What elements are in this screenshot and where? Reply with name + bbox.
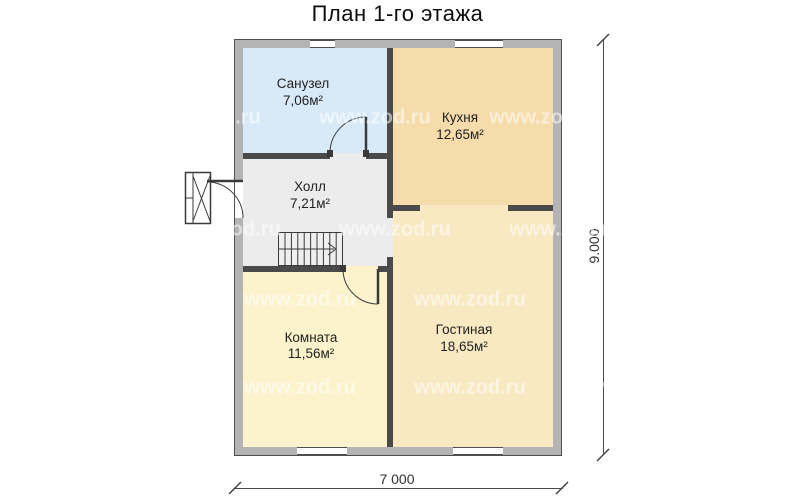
watermark: www.zod.ru	[414, 289, 525, 312]
room-area: 7,21м²	[290, 196, 330, 212]
window-bathroom	[310, 40, 335, 48]
room-name: Гостиная	[436, 322, 493, 338]
room-name: Санузел	[277, 76, 330, 92]
window-bedroom	[297, 447, 347, 455]
watermark: www.zod.ru	[414, 377, 525, 400]
room-name: Комната	[285, 330, 338, 346]
watermark: www.zod.ru	[244, 289, 355, 312]
room-bathroom: Санузел 7,06м²	[243, 48, 387, 153]
watermark: www.zod.ru	[339, 219, 450, 242]
wall-hall-bedroom	[243, 266, 343, 272]
room-name: Кухня	[436, 110, 484, 126]
room-label-hall: Холл 7,21м²	[290, 179, 330, 212]
dimension-label-width: 7 000	[347, 471, 447, 487]
entrance-opening	[235, 181, 243, 218]
page-title: План 1-го этажа	[0, 1, 795, 27]
wall-kitchen-living-right	[508, 205, 553, 211]
watermark: www.zod.ru	[169, 219, 280, 242]
dimension-line-horizontal	[235, 488, 563, 489]
room-label-bathroom: Санузел 7,06м²	[277, 76, 330, 109]
wall-vertical-lower	[387, 257, 393, 447]
watermark: www.zod.ru	[319, 107, 430, 130]
room-label-kitchen: Кухня 12,65м²	[436, 110, 484, 143]
wall-hall-bedroom-jamb	[378, 266, 393, 272]
watermark: www.zod.ru	[509, 219, 620, 242]
room-area: 12,65м²	[436, 127, 484, 143]
room-area: 18,65м²	[436, 339, 493, 355]
wall-kitchen-living-left	[393, 205, 420, 211]
room-name: Холл	[290, 179, 330, 195]
wall-bathroom-hall	[243, 153, 330, 159]
watermark: www.zod.ru	[149, 107, 260, 130]
watermark: www.zod.ru	[244, 377, 355, 400]
dimension-label-height: 9.000	[586, 196, 602, 296]
floor-plan-image: План 1-го этажа Санузел 7,06м² Кухня 12,…	[0, 0, 795, 496]
watermark: www.zod.ru	[564, 377, 675, 400]
room-label-living: Гостиная 18,65м²	[436, 322, 493, 355]
room-hall: Холл 7,21м²	[243, 153, 393, 266]
window-living	[453, 447, 503, 455]
porch-steps	[186, 173, 211, 224]
window-kitchen	[455, 40, 503, 48]
room-area: 11,56м²	[285, 346, 338, 362]
wall-vertical-upper	[387, 48, 393, 218]
watermark: www.zod.ru	[489, 107, 600, 130]
room-label-bedroom: Комната 11,56м²	[285, 330, 338, 363]
